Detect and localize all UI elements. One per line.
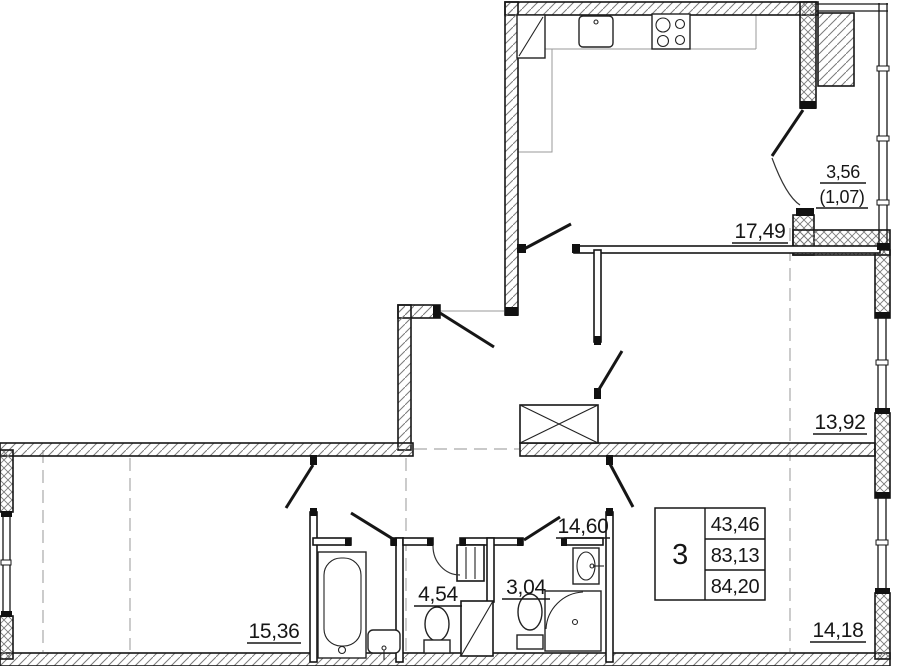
label-room-bottom: 14,18 [812,619,863,642]
wall-hall-room13 [594,250,601,342]
table-row3: 84,20 [711,576,760,598]
kitchen-door-leaf [524,224,571,249]
wall-balcony-partition [800,2,816,108]
balcony-glazing-top [816,4,888,11]
closet-upper [457,545,484,581]
wall-bottom [0,653,890,666]
wall-kitchen-room13 [574,246,880,253]
wall-top [505,2,818,15]
entry-door-leaf [440,313,494,347]
kitchen-counter [518,14,756,152]
wall-right-1 [875,250,890,318]
floor-plan-drawing: 17,49 3,56 (1,07) 13,92 14,60 15,36 4,54… [0,0,900,666]
table-rooms-count: 3 [672,539,688,571]
wall-room15-hall [310,512,317,662]
label-kitchen-living: 17,49 [734,220,785,243]
label-balcony-reduced: (1,07) [819,187,864,207]
wall-hall-left [398,305,411,450]
kitchen-sink [579,16,613,47]
fixtures [318,14,690,660]
room13-door-leaf [598,351,622,391]
bathroom-door-leaf [351,513,393,539]
wall-left-upper [0,450,13,512]
label-shower-room: 3,04 [506,576,546,599]
doors [286,110,803,575]
floor-plan: 17,49 3,56 (1,07) 13,92 14,60 15,36 4,54… [0,0,900,666]
wall-right-3 [875,593,890,659]
label-balcony-area: 3,56 [826,162,860,182]
toilet-shower-room-tank [517,635,543,649]
room15-door-leaf [286,465,313,508]
label-hallway: 14,60 [557,515,608,538]
room14-door-leaf [610,464,633,507]
wall-band-right [520,443,875,456]
shower-room-door-leaf [524,517,560,540]
balcony-door-arc [772,158,800,205]
table-row1: 43,46 [711,514,760,536]
toilet-wc [425,607,449,641]
balcony-hatched-block [818,13,854,86]
wall-shower-top [565,538,603,545]
wall-band-left [0,443,413,456]
wall-kitchen-left [505,2,518,315]
wall-right-2 [875,413,890,498]
wall-wc-shower [487,538,494,602]
label-room-left: 15,36 [248,620,299,643]
label-wc: 4,54 [418,583,458,606]
toilet-wc-tank [424,640,450,653]
balcony-glazing-right [879,3,887,243]
apartment-info-table: 3 43,46 83,13 84,20 [655,508,765,600]
wc-door-arc [433,546,460,575]
table-row2: 83,13 [711,545,760,567]
label-room-right: 13,92 [814,411,865,434]
wall-left-lower [0,616,13,659]
balcony-door-leaf [772,110,803,156]
